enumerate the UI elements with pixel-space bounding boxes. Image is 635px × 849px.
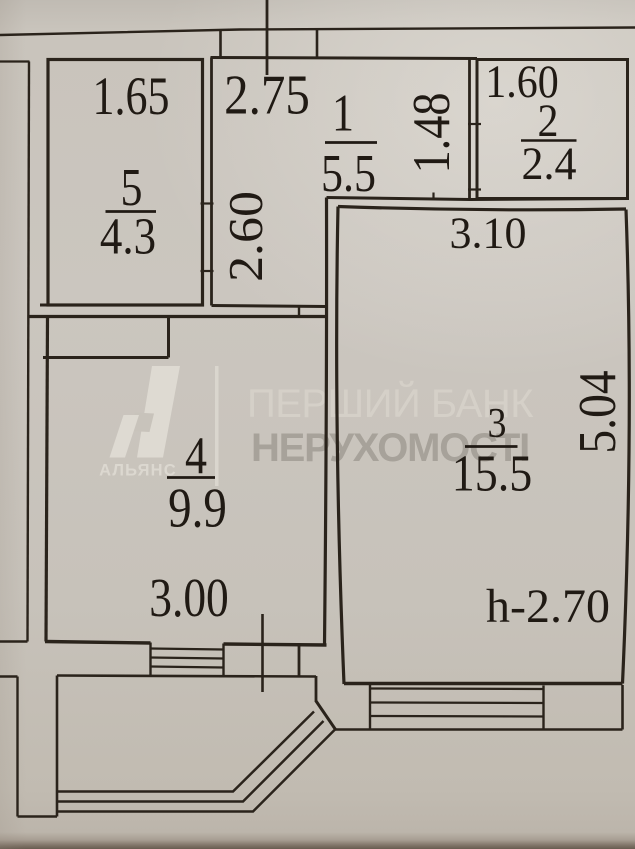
svg-text:3: 3 [488,399,507,446]
svg-text:9.9: 9.9 [168,478,227,540]
svg-text:3.10: 3.10 [450,209,527,258]
svg-text:2.4: 2.4 [522,138,577,189]
svg-text:4.3: 4.3 [100,208,156,265]
svg-text:h-2.70: h-2.70 [486,580,610,633]
svg-text:1: 1 [332,84,354,143]
svg-text:2.60: 2.60 [219,191,273,282]
svg-text:5.04: 5.04 [568,370,627,453]
svg-text:2.75: 2.75 [224,64,310,126]
svg-text:1.65: 1.65 [93,66,170,126]
svg-text:15.5: 15.5 [452,444,532,502]
svg-text:3.00: 3.00 [149,567,229,628]
svg-text:1.48: 1.48 [402,93,461,174]
svg-text:АЛЬЯНС: АЛЬЯНС [99,462,177,480]
svg-text:5.5: 5.5 [321,144,376,203]
